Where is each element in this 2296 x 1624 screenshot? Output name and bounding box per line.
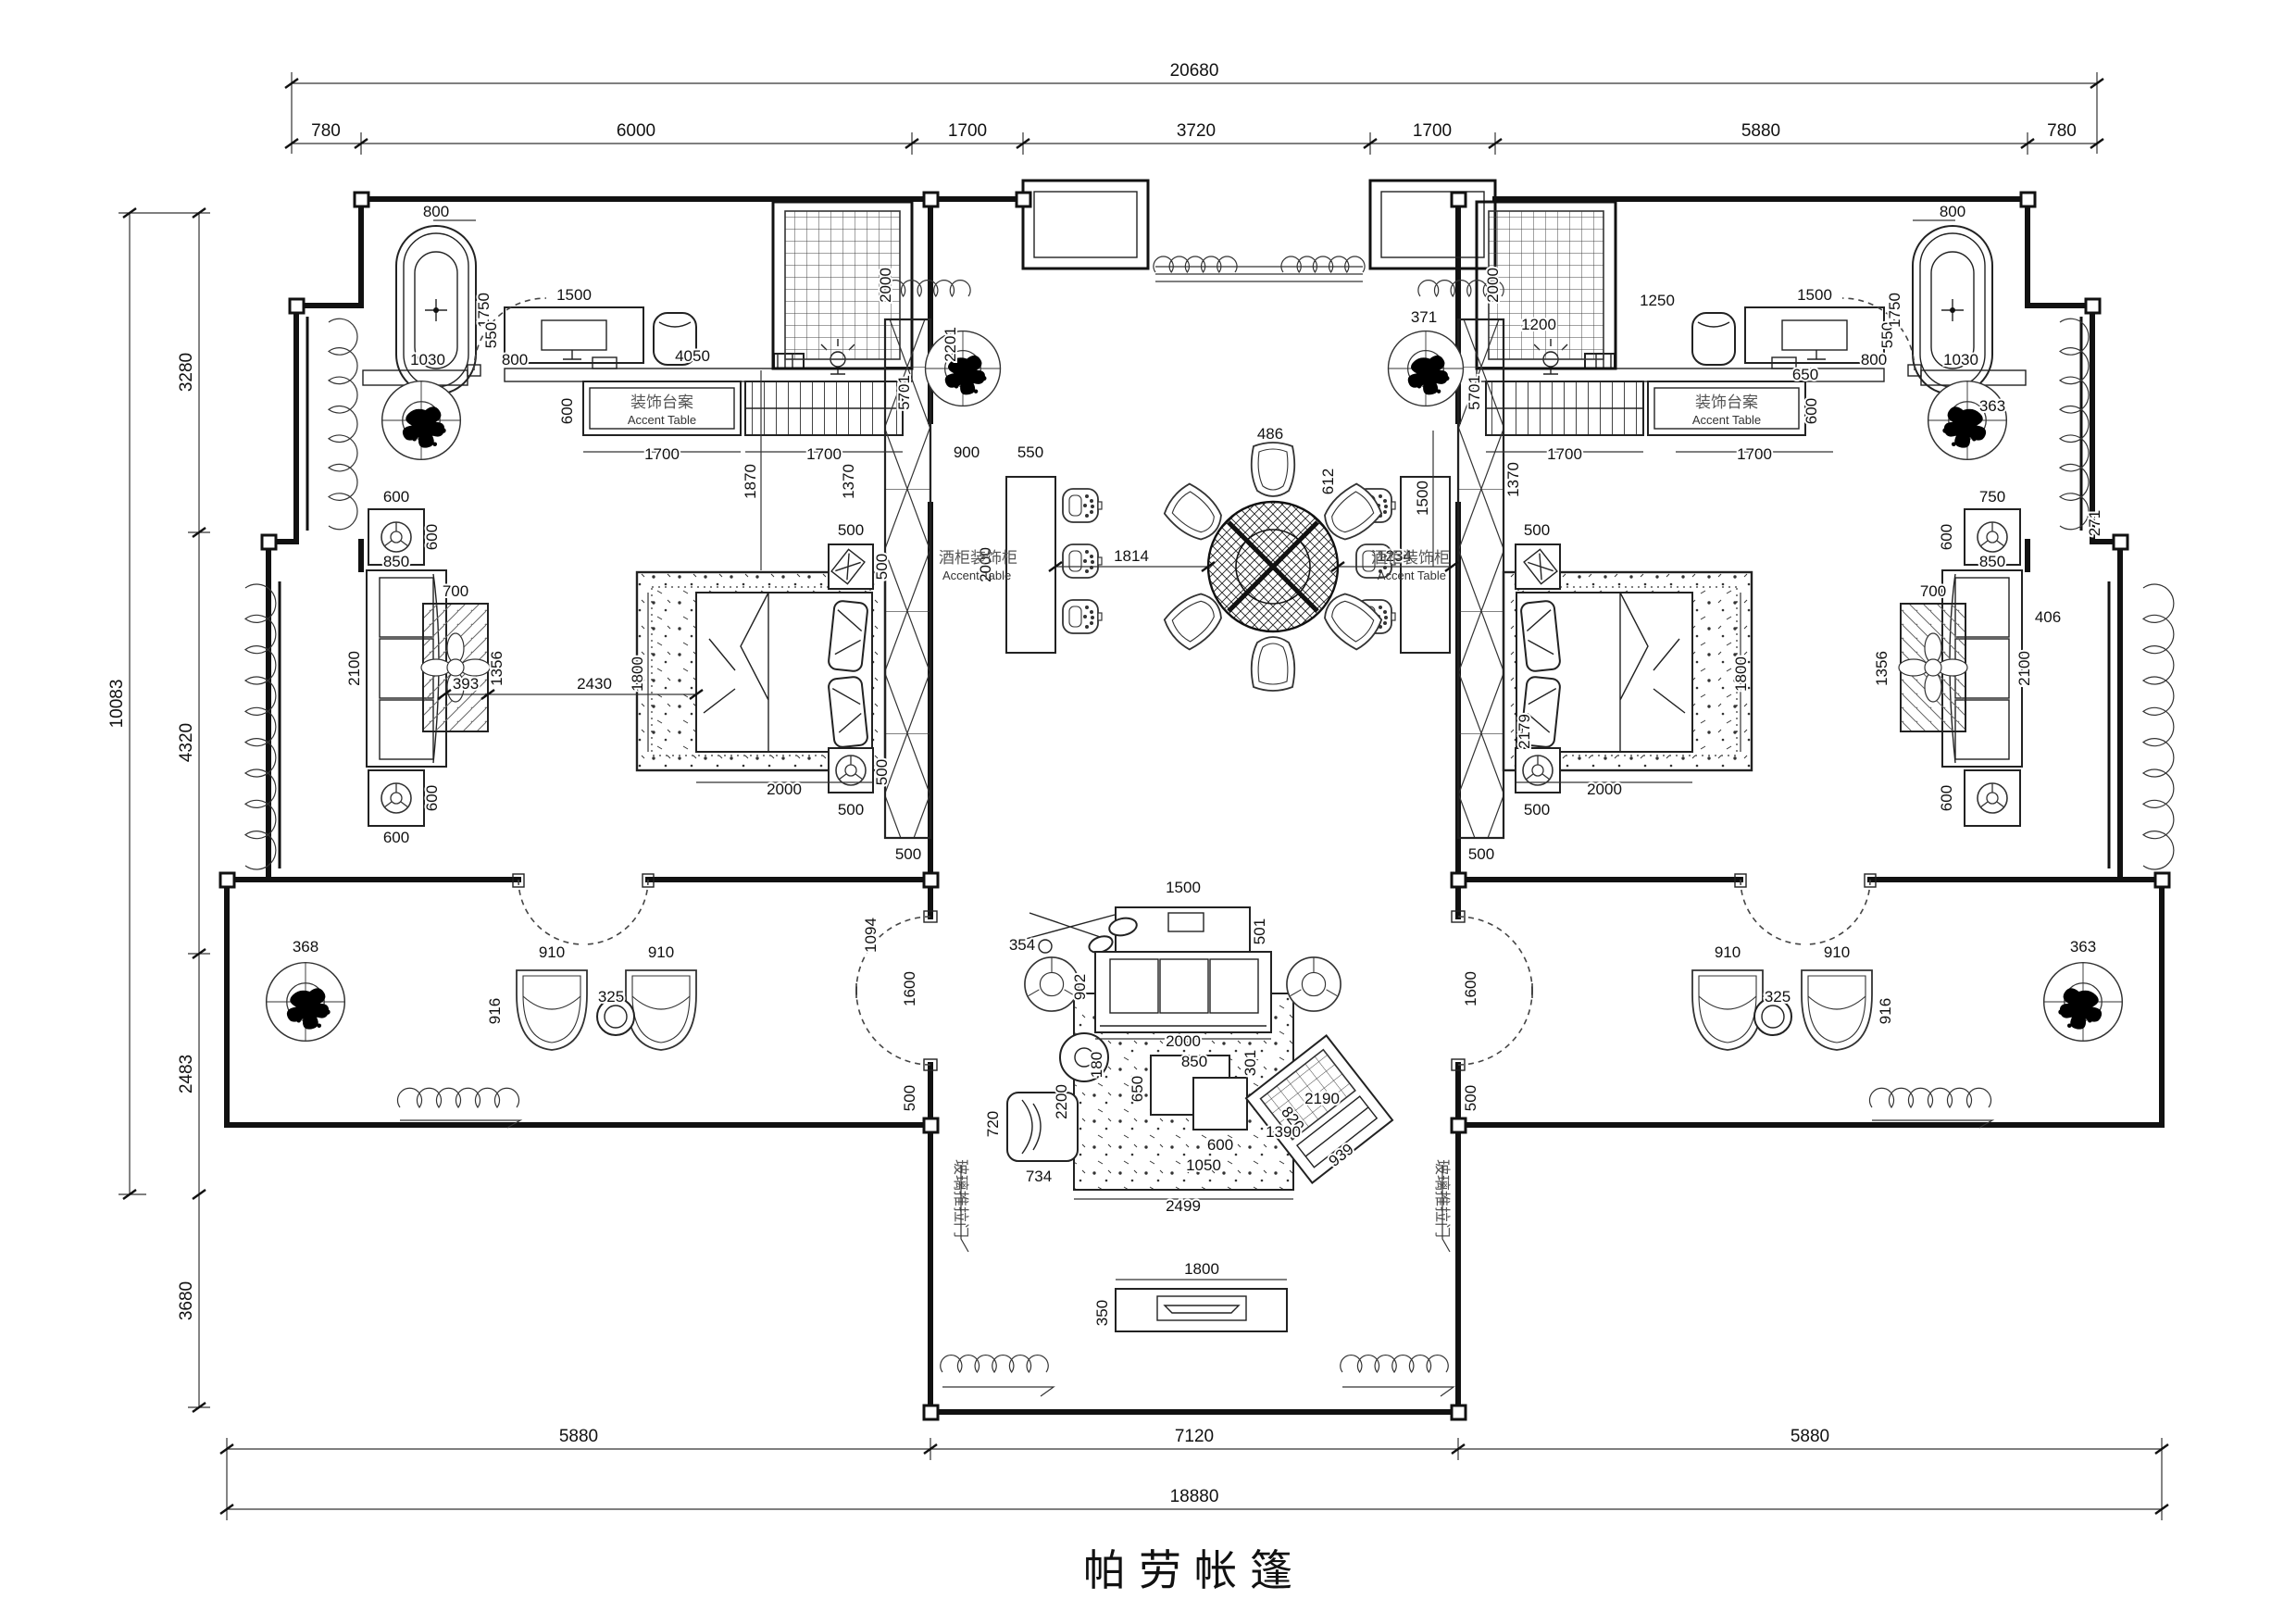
dim: 3720 bbox=[1177, 121, 1216, 141]
wall-columns bbox=[220, 193, 2169, 1419]
end-table-lamp bbox=[381, 783, 411, 813]
dim: 850 bbox=[1979, 553, 2005, 570]
dim: 180 bbox=[1088, 1052, 1105, 1078]
dim: 1500 bbox=[1166, 879, 1201, 896]
dim: 500 bbox=[895, 845, 921, 863]
curtain-coil bbox=[1341, 1355, 1448, 1372]
dim: 600 bbox=[1803, 398, 1820, 424]
dim: 700 bbox=[1920, 582, 1946, 600]
dim: 271 bbox=[2086, 510, 2103, 536]
dining-chair bbox=[1252, 443, 1295, 496]
dim: 1700 bbox=[806, 445, 842, 463]
dim: 2430 bbox=[577, 675, 612, 693]
curtain-coil bbox=[1281, 256, 1365, 272]
dim: 2201 bbox=[942, 327, 959, 362]
dim: 600 bbox=[1938, 524, 1955, 550]
dim: 500 bbox=[873, 554, 891, 580]
dim: 4320 bbox=[177, 723, 196, 762]
curtain-coil bbox=[941, 1355, 1048, 1372]
dim: 1500 bbox=[1797, 286, 1832, 304]
dim: 1700 bbox=[1413, 121, 1452, 141]
dim: 500 bbox=[873, 759, 891, 785]
living-sofa bbox=[1095, 952, 1271, 1032]
dim: 1750 bbox=[1886, 293, 1903, 328]
dim: 1870 bbox=[742, 464, 759, 499]
accent-table-label-en: Accent Table bbox=[628, 413, 696, 427]
dim: 18880 bbox=[1170, 1487, 1219, 1506]
dim: 2190 bbox=[1304, 1090, 1340, 1107]
dim: 1050 bbox=[1186, 1156, 1221, 1174]
floor-plan-drawing: 20680 780 6000 1700 3720 1700 5880 780 1… bbox=[0, 0, 2296, 1624]
wine-cabinet-label-en: Accent Table bbox=[1378, 568, 1446, 582]
deck-bench bbox=[1116, 1289, 1287, 1331]
side-table bbox=[1287, 957, 1341, 1011]
dim: 2200 bbox=[1053, 1084, 1070, 1119]
dim: 800 bbox=[1940, 203, 1965, 220]
dim: 2000 bbox=[1587, 781, 1622, 798]
left-wing-furniture bbox=[267, 202, 937, 1070]
plant-corridor-right bbox=[1389, 331, 1464, 406]
dim: 501 bbox=[1251, 918, 1268, 944]
terrace-chair bbox=[517, 970, 587, 1050]
curtain-coil bbox=[397, 1088, 518, 1107]
dim: 720 bbox=[984, 1111, 1002, 1137]
accent-table-label-en: Accent Table bbox=[1692, 413, 1761, 427]
dim: 1800 bbox=[1732, 656, 1750, 692]
dim: 902 bbox=[1071, 974, 1089, 1000]
dim: 2499 bbox=[1166, 1197, 1201, 1215]
dim: 550 bbox=[482, 322, 500, 348]
dim: 910 bbox=[648, 943, 674, 961]
dim: 5880 bbox=[1741, 121, 1780, 141]
dim: 500 bbox=[1462, 1085, 1479, 1111]
dim: 2483 bbox=[177, 1055, 196, 1093]
dim: 500 bbox=[838, 801, 864, 818]
dim: 1800 bbox=[629, 656, 646, 692]
dim: 910 bbox=[1824, 943, 1850, 961]
dim: 1700 bbox=[1547, 445, 1582, 463]
accent-table-label-zh: 装饰台案 bbox=[630, 394, 693, 411]
dim: 850 bbox=[1181, 1053, 1207, 1070]
wine-cabinet-label-zh: 酒柜装饰柜 bbox=[939, 549, 1017, 567]
dim: 500 bbox=[1524, 801, 1550, 818]
dim: 1390 bbox=[1266, 1123, 1301, 1141]
plant-corridor-left bbox=[926, 331, 1001, 406]
dim: 500 bbox=[901, 1085, 918, 1111]
curtain-coil bbox=[1154, 256, 1237, 272]
deck-area bbox=[1116, 1289, 1287, 1331]
curtain-coil bbox=[329, 319, 357, 530]
dim: 916 bbox=[486, 998, 504, 1024]
dim: 1250 bbox=[1640, 292, 1675, 309]
curtain-coil bbox=[2060, 319, 2089, 530]
dim: 600 bbox=[558, 398, 576, 424]
dim: 3680 bbox=[177, 1281, 196, 1320]
dim: 900 bbox=[954, 443, 980, 461]
dim: 1700 bbox=[644, 445, 680, 463]
curtain-coil bbox=[1869, 1088, 1990, 1107]
dim: 500 bbox=[1524, 521, 1550, 539]
door-bedroom-terrace bbox=[513, 874, 654, 944]
dim: 600 bbox=[423, 524, 441, 550]
dim: 800 bbox=[1861, 351, 1887, 369]
dim: 1356 bbox=[1873, 651, 1890, 686]
dim: 910 bbox=[1715, 943, 1741, 961]
dim: 916 bbox=[1877, 998, 1894, 1024]
floor-plan-sheet: 20680 780 6000 1700 3720 1700 5880 780 1… bbox=[0, 0, 2296, 1624]
curtain-coil bbox=[2143, 584, 2174, 869]
dim: 1700 bbox=[948, 121, 987, 141]
dim: 910 bbox=[539, 943, 565, 961]
dim: 6000 bbox=[617, 121, 655, 141]
dim: 600 bbox=[383, 488, 409, 506]
dim: 2000 bbox=[1166, 1032, 1201, 1050]
dim: 800 bbox=[423, 203, 449, 220]
dim: 2000 bbox=[877, 268, 894, 303]
console-table bbox=[1116, 907, 1250, 954]
dim: 5880 bbox=[1791, 1427, 1829, 1446]
dim: 1030 bbox=[1943, 351, 1978, 369]
dim: 2179 bbox=[1516, 714, 1533, 749]
dining-chair bbox=[1252, 637, 1295, 691]
nightstand-lamp bbox=[836, 756, 866, 785]
dim: 325 bbox=[1765, 988, 1791, 1006]
dim: 780 bbox=[311, 121, 341, 141]
dim: 406 bbox=[2035, 608, 2061, 626]
dim: 2000 bbox=[1484, 268, 1502, 303]
dim: 5701 bbox=[895, 375, 913, 410]
dim: 2100 bbox=[2015, 651, 2033, 686]
dim: 301 bbox=[1242, 1050, 1259, 1076]
dim: 4050 bbox=[675, 347, 710, 365]
dim: 1094 bbox=[862, 918, 880, 953]
dim: 780 bbox=[2047, 121, 2077, 141]
wardrobe bbox=[745, 381, 903, 435]
dim: 600 bbox=[383, 829, 409, 846]
vanity-counter bbox=[505, 369, 912, 381]
dim: 550 bbox=[1017, 443, 1043, 461]
dim: 1356 bbox=[488, 651, 505, 686]
curtain-coils bbox=[245, 256, 2174, 1396]
dim: 1030 bbox=[410, 351, 445, 369]
sheet-title: 帕劳帐篷 bbox=[1083, 1547, 1305, 1594]
dim: 393 bbox=[453, 675, 479, 693]
dim: 1700 bbox=[1737, 445, 1772, 463]
dim: 600 bbox=[1207, 1136, 1233, 1154]
dim: 1370 bbox=[1504, 462, 1522, 497]
dim: 1600 bbox=[901, 971, 918, 1006]
dim: 1370 bbox=[840, 464, 857, 499]
dim: 20680 bbox=[1170, 61, 1219, 81]
dim: 1800 bbox=[1184, 1260, 1219, 1278]
coffee-table-small bbox=[1193, 1078, 1247, 1130]
dim: 5701 bbox=[1466, 375, 1483, 410]
flower-rug bbox=[421, 604, 490, 731]
plant-bath bbox=[382, 381, 461, 460]
dim: 3280 bbox=[177, 353, 196, 392]
dim: 600 bbox=[1938, 785, 1955, 811]
accent-table-label-zh: 装饰台案 bbox=[1695, 394, 1758, 411]
dim: 800 bbox=[502, 351, 528, 369]
dim: 700 bbox=[443, 582, 468, 600]
dim: 600 bbox=[423, 785, 441, 811]
end-table-lamp bbox=[381, 522, 411, 552]
dim: 850 bbox=[383, 553, 409, 570]
bar-stool bbox=[1063, 600, 1102, 633]
dim: 486 bbox=[1257, 425, 1283, 443]
dim: 1500 bbox=[1414, 481, 1431, 516]
plant-terrace bbox=[267, 963, 345, 1042]
bed bbox=[696, 593, 872, 752]
wine-cabinet-label-en: Accent Table bbox=[942, 568, 1011, 582]
dim: 2100 bbox=[345, 651, 363, 686]
wine-cabinet-label-zh: 酒柜装饰柜 bbox=[1371, 549, 1450, 567]
dim: 500 bbox=[838, 521, 864, 539]
bathtub bbox=[396, 226, 476, 394]
dim: 1600 bbox=[1462, 971, 1479, 1006]
dim: 368 bbox=[293, 938, 318, 956]
bar-stool bbox=[1063, 544, 1102, 578]
terrace-chair bbox=[626, 970, 696, 1050]
dim: 500 bbox=[1468, 845, 1494, 863]
dim: 363 bbox=[2070, 938, 2096, 956]
dim: 10083 bbox=[107, 680, 127, 729]
dim: 2000 bbox=[767, 781, 802, 798]
dim: 354 bbox=[1009, 936, 1035, 954]
dim: 1200 bbox=[1521, 316, 1556, 333]
dim: 363 bbox=[1979, 397, 2005, 415]
bar-stool bbox=[1063, 489, 1102, 522]
dim: 1814 bbox=[1114, 547, 1149, 565]
dim: 371 bbox=[1411, 308, 1437, 326]
dim: 325 bbox=[598, 988, 624, 1006]
dim: 750 bbox=[1979, 488, 2005, 506]
dim: 7120 bbox=[1175, 1427, 1214, 1446]
dim: 612 bbox=[1319, 468, 1337, 494]
dim: 1500 bbox=[556, 286, 592, 304]
dim: 734 bbox=[1026, 1168, 1052, 1185]
dim: 350 bbox=[1093, 1300, 1111, 1326]
dim: 650 bbox=[1792, 366, 1818, 383]
dim: 650 bbox=[1129, 1076, 1146, 1102]
dim: 5880 bbox=[559, 1427, 598, 1446]
